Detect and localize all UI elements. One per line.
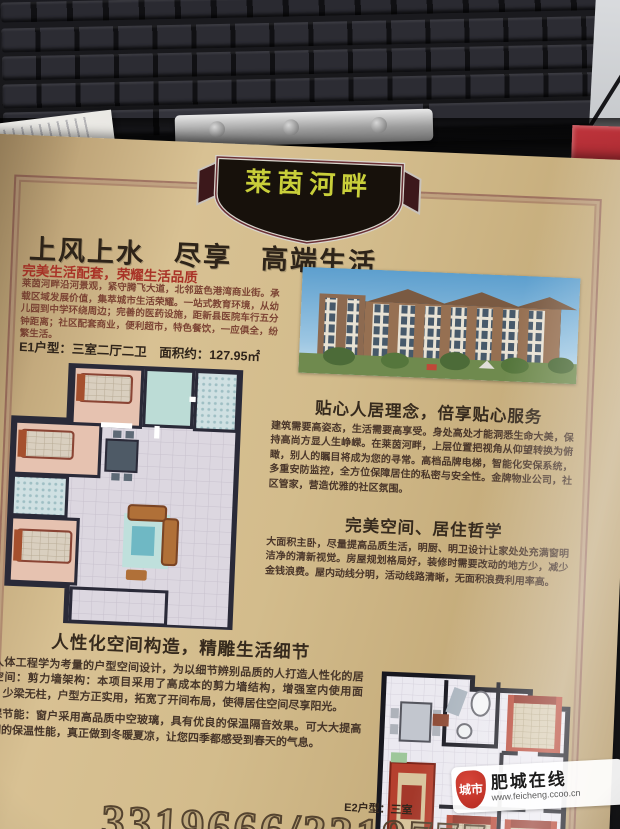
e1-bathroom-top	[194, 371, 238, 431]
section2-body: 大面积主卧，尽量提高品质生活，明厨、明卫设计让家处处充满窗明洁净的清新视觉。房屋…	[265, 535, 570, 591]
clip-rivet	[283, 119, 299, 135]
badge-title-text: 莱茵河畔	[245, 166, 374, 201]
e2-bed-top-right	[506, 695, 563, 755]
e1-bed-mid	[17, 430, 73, 459]
metal-clip	[175, 109, 434, 148]
e1-floorplan	[0, 360, 256, 630]
site-watermark: 城市 肥城在线 www.feicheng.ccoo.cn	[451, 759, 620, 814]
clip-rivet	[371, 117, 387, 133]
e1-balcony	[70, 588, 167, 625]
section1-body: 建筑需要高姿态，生活需要高享受。身处高处才能洞悉生命大美，保持高尚方显人生峥嵘。…	[268, 420, 574, 505]
clip-rivet	[209, 121, 225, 137]
playground-item	[427, 364, 437, 370]
e1-bed-bottom	[13, 529, 71, 563]
real-estate-flyer: 莱茵河畔 上风上水 尽享 高端生活 完美生活配套，荣耀生活品质 莱茵河畔沿河景观…	[0, 133, 620, 829]
watermark-text: 肥城在线 www.feicheng.ccoo.cn	[490, 769, 580, 804]
city-seal-icon: 城市	[455, 770, 487, 810]
desk-photo-scene: 莱茵河畔 上风上水 尽享 高端生活 完美生活配套，荣耀生活品质 莱茵河畔沿河景观…	[0, 0, 620, 829]
e1-kitchen	[144, 369, 194, 427]
e1-bathroom-mid	[12, 475, 68, 517]
building-render-photo	[298, 267, 580, 385]
e1-bed-top	[76, 374, 132, 403]
